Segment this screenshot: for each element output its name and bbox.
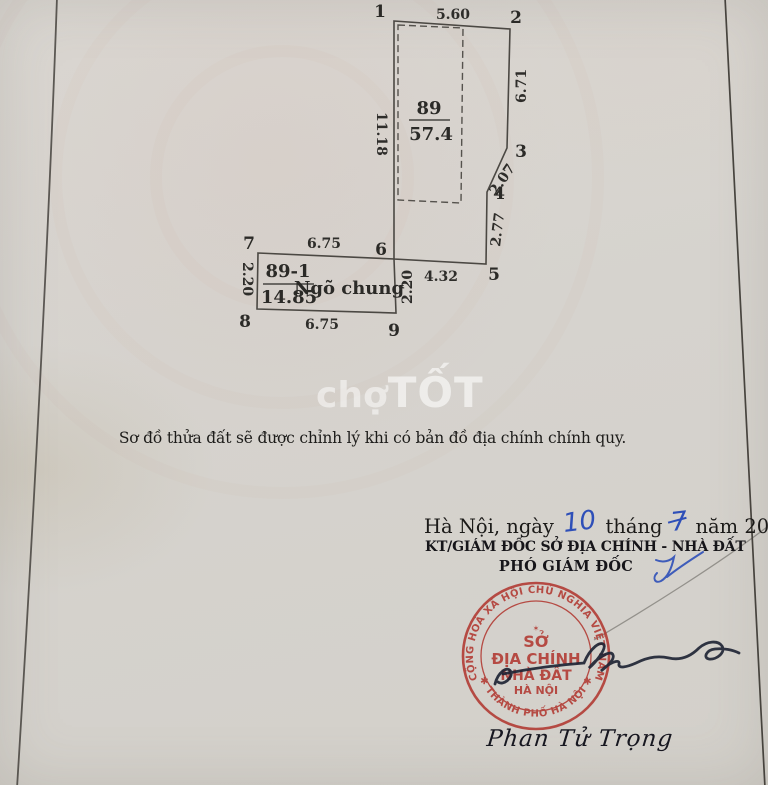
dim-bottom: 4.32 [424, 269, 458, 285]
place-date-line: Hà Nội, ngày 10 tháng 7 năm 2002 [424, 510, 768, 540]
handwritten-day: 10 [561, 505, 598, 539]
dim-left: 11.18 [373, 112, 389, 156]
vertex-label-1: 1 [374, 2, 386, 22]
left-crease-line [17, 0, 57, 785]
vertex-label-2: 2 [510, 8, 522, 28]
watermark-light-text: chợ [316, 375, 388, 416]
chotot-watermark: chợTỐT [316, 368, 484, 417]
signer-name: Phan Tử Trọng [454, 726, 707, 752]
vertex-label-5: 5 [488, 265, 500, 285]
vertex-label-8: 8 [239, 312, 251, 332]
plot-89-area: 57.4 [409, 124, 453, 145]
date-suffix: năm 2002 [695, 515, 768, 538]
dim-top: 5.60 [436, 7, 470, 23]
vertex-label-3: 3 [515, 142, 527, 162]
alley-label: Ngõ chung [294, 278, 405, 299]
watermark-bold-text: TỐT [388, 368, 484, 417]
dim-right-upper: 6.71 [514, 69, 530, 103]
vertex-label-9: 9 [388, 321, 400, 341]
date-prefix: Hà Nội, ngày [424, 515, 554, 538]
title-line-1: KT/GIÁM ĐỐC SỞ ĐỊA CHÍNH - NHÀ ĐẤT [425, 539, 707, 555]
stamp-center-line1: SỞ [523, 630, 549, 651]
dim-diagonal: 2.07 [487, 161, 519, 198]
dim-alley-top: 6.75 [307, 236, 341, 252]
vertex-label-7: 7 [243, 234, 255, 254]
dim-alley-left: 2.20 [239, 262, 255, 296]
signer-titles: KT/GIÁM ĐỐC SỞ ĐỊA CHÍNH - NHÀ ĐẤT PHÓ G… [425, 539, 707, 575]
handwritten-month: 7 [669, 506, 689, 538]
diagram-caption: Sơ đồ thửa đất sẽ được chỉnh lý khi có b… [0, 429, 745, 447]
scanned-land-document: 1 2 3 4 5 6 7 8 9 5.60 11.18 6.71 2.07 2… [0, 0, 768, 785]
plot-89-id: 89 [416, 98, 441, 119]
dim-alley-bottom: 6.75 [305, 317, 339, 333]
right-crease-line [725, 0, 765, 785]
dim-right-lower: 2.77 [488, 212, 508, 248]
vertex-label-6: 6 [375, 240, 387, 260]
date-mid: tháng [605, 515, 662, 538]
plot-diagram: 1 2 3 4 5 6 7 8 9 5.60 11.18 6.71 2.07 2… [239, 2, 530, 341]
stamp-center-line4: HÀ NỘI [514, 684, 558, 697]
title-line-2: PHÓ GIÁM ĐỐC [425, 558, 707, 575]
